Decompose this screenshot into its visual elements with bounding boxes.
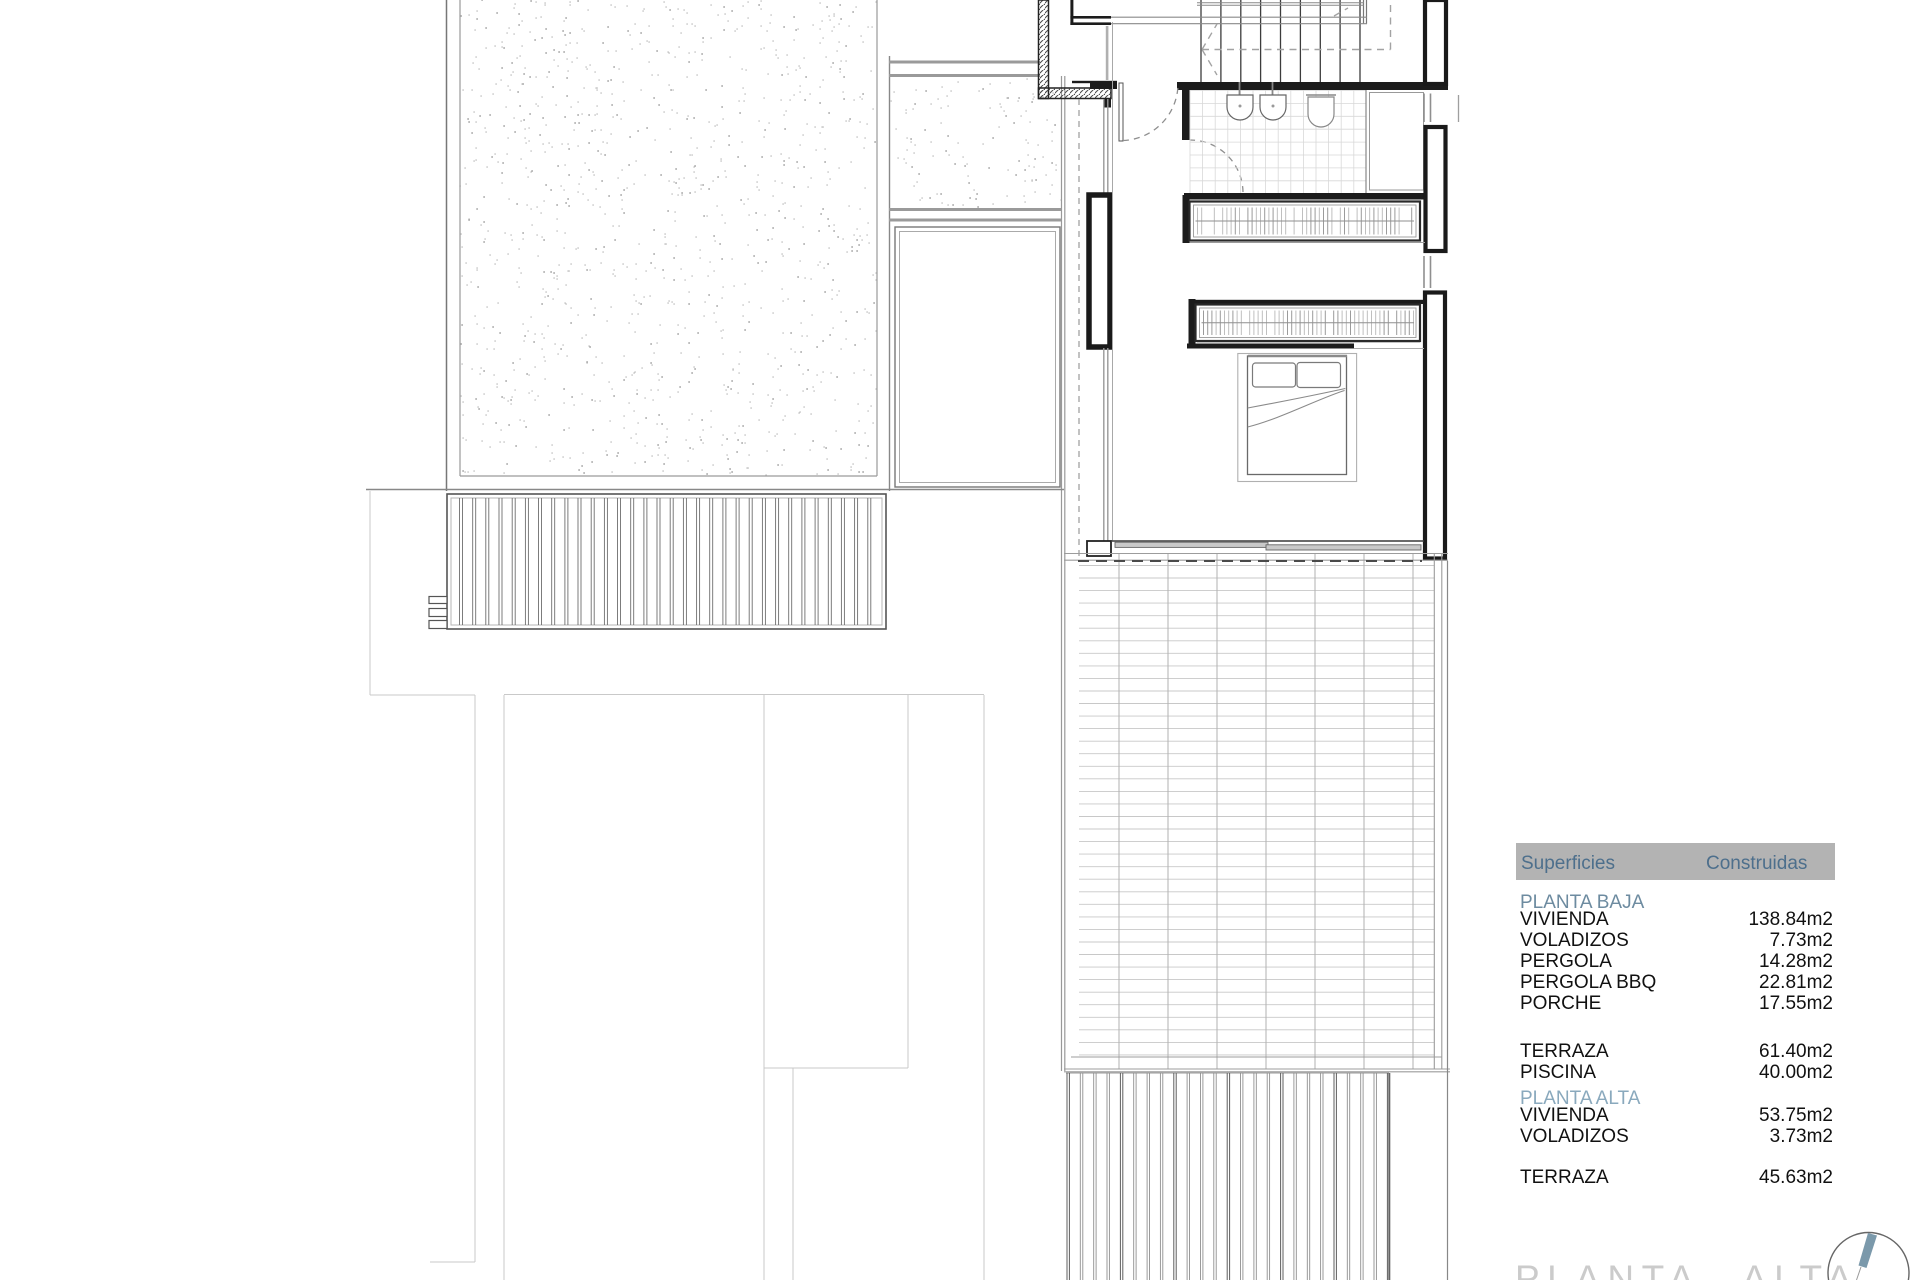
svg-text:7.73m2: 7.73m2: [1770, 930, 1833, 951]
svg-text:TERRAZA: TERRAZA: [1520, 1041, 1609, 1062]
svg-text:VIVIENDA: VIVIENDA: [1520, 909, 1609, 930]
svg-text:22.81m2: 22.81m2: [1759, 972, 1833, 993]
svg-text:VOLADIZOS: VOLADIZOS: [1520, 930, 1629, 951]
svg-text:PERGOLA BBQ: PERGOLA BBQ: [1520, 972, 1656, 993]
svg-text:53.75m2: 53.75m2: [1759, 1105, 1833, 1126]
svg-text:3.73m2: 3.73m2: [1770, 1126, 1833, 1147]
svg-text:Superficies: Superficies: [1521, 853, 1615, 874]
svg-text:Construidas: Construidas: [1706, 853, 1807, 874]
svg-text:61.40m2: 61.40m2: [1759, 1041, 1833, 1062]
svg-text:PORCHE: PORCHE: [1520, 993, 1601, 1014]
svg-text:14.28m2: 14.28m2: [1759, 951, 1833, 972]
svg-text:TERRAZA: TERRAZA: [1520, 1167, 1609, 1188]
svg-text:PLANTA: PLANTA: [1515, 1258, 1701, 1280]
svg-text:45.63m2: 45.63m2: [1759, 1167, 1833, 1188]
svg-text:17.55m2: 17.55m2: [1759, 993, 1833, 1014]
svg-text:138.84m2: 138.84m2: [1748, 909, 1833, 930]
svg-text:PERGOLA: PERGOLA: [1520, 951, 1612, 972]
svg-text:VOLADIZOS: VOLADIZOS: [1520, 1126, 1629, 1147]
svg-text:VIVIENDA: VIVIENDA: [1520, 1105, 1609, 1126]
svg-text:40.00m2: 40.00m2: [1759, 1062, 1833, 1083]
svg-text:PISCINA: PISCINA: [1520, 1062, 1596, 1083]
svg-text:ALTA: ALTA: [1742, 1258, 1859, 1280]
